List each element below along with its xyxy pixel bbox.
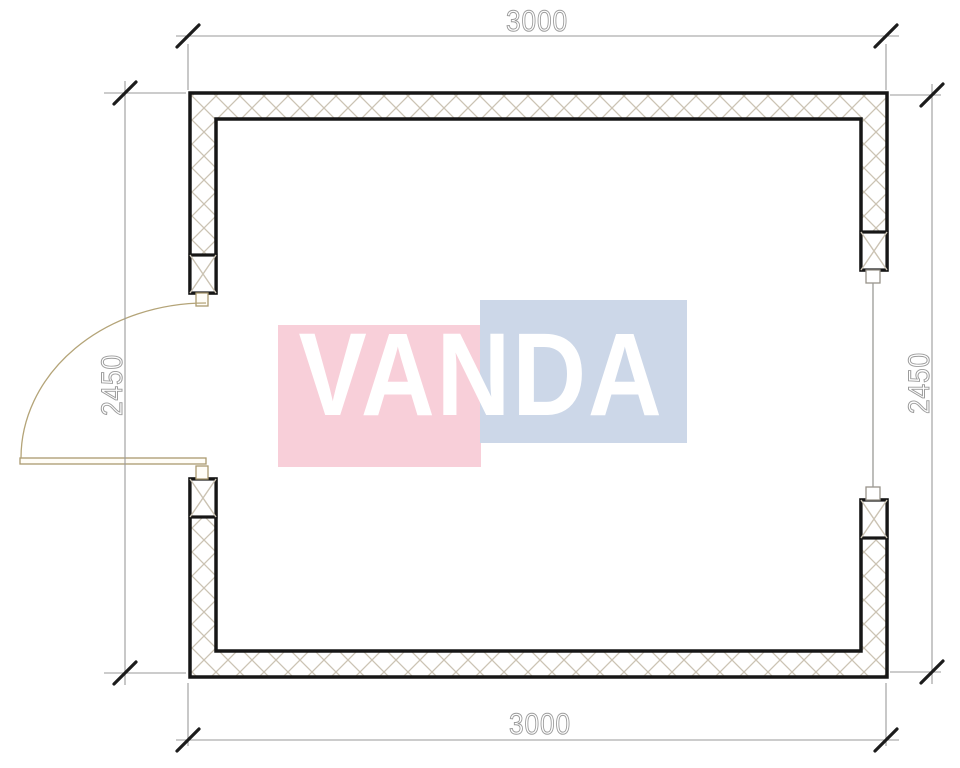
floor-plan-canvas: VANDA [0,0,960,768]
door-jamb-lower [190,479,216,517]
dimension-bottom-value: 3000 [509,708,571,741]
dimension-bottom: 3000 [176,683,899,751]
dimension-top-value: 3000 [506,5,568,38]
wall-lower-u [190,479,887,677]
window-jamb-upper [861,232,887,270]
watermark-text: VANDA [299,309,664,441]
door-jamb-upper [190,255,216,293]
door-frame-lower [196,466,208,479]
floor-plan-page: VANDA [0,0,960,768]
dimension-top: 3000 [176,5,899,90]
window-frame-lower [866,487,880,500]
door-leaf [20,458,206,464]
dimension-left: 2450 [96,81,186,685]
wall-upper-u [190,93,887,293]
window [866,270,880,500]
window-frame-upper [866,270,880,283]
door-frame-upper [196,293,208,306]
dimension-right-value: 2450 [903,352,936,414]
dimension-right: 2450 [890,84,943,684]
dimension-left-value: 2450 [96,354,129,416]
window-jamb-lower [861,500,887,538]
watermark: VANDA [278,300,687,467]
